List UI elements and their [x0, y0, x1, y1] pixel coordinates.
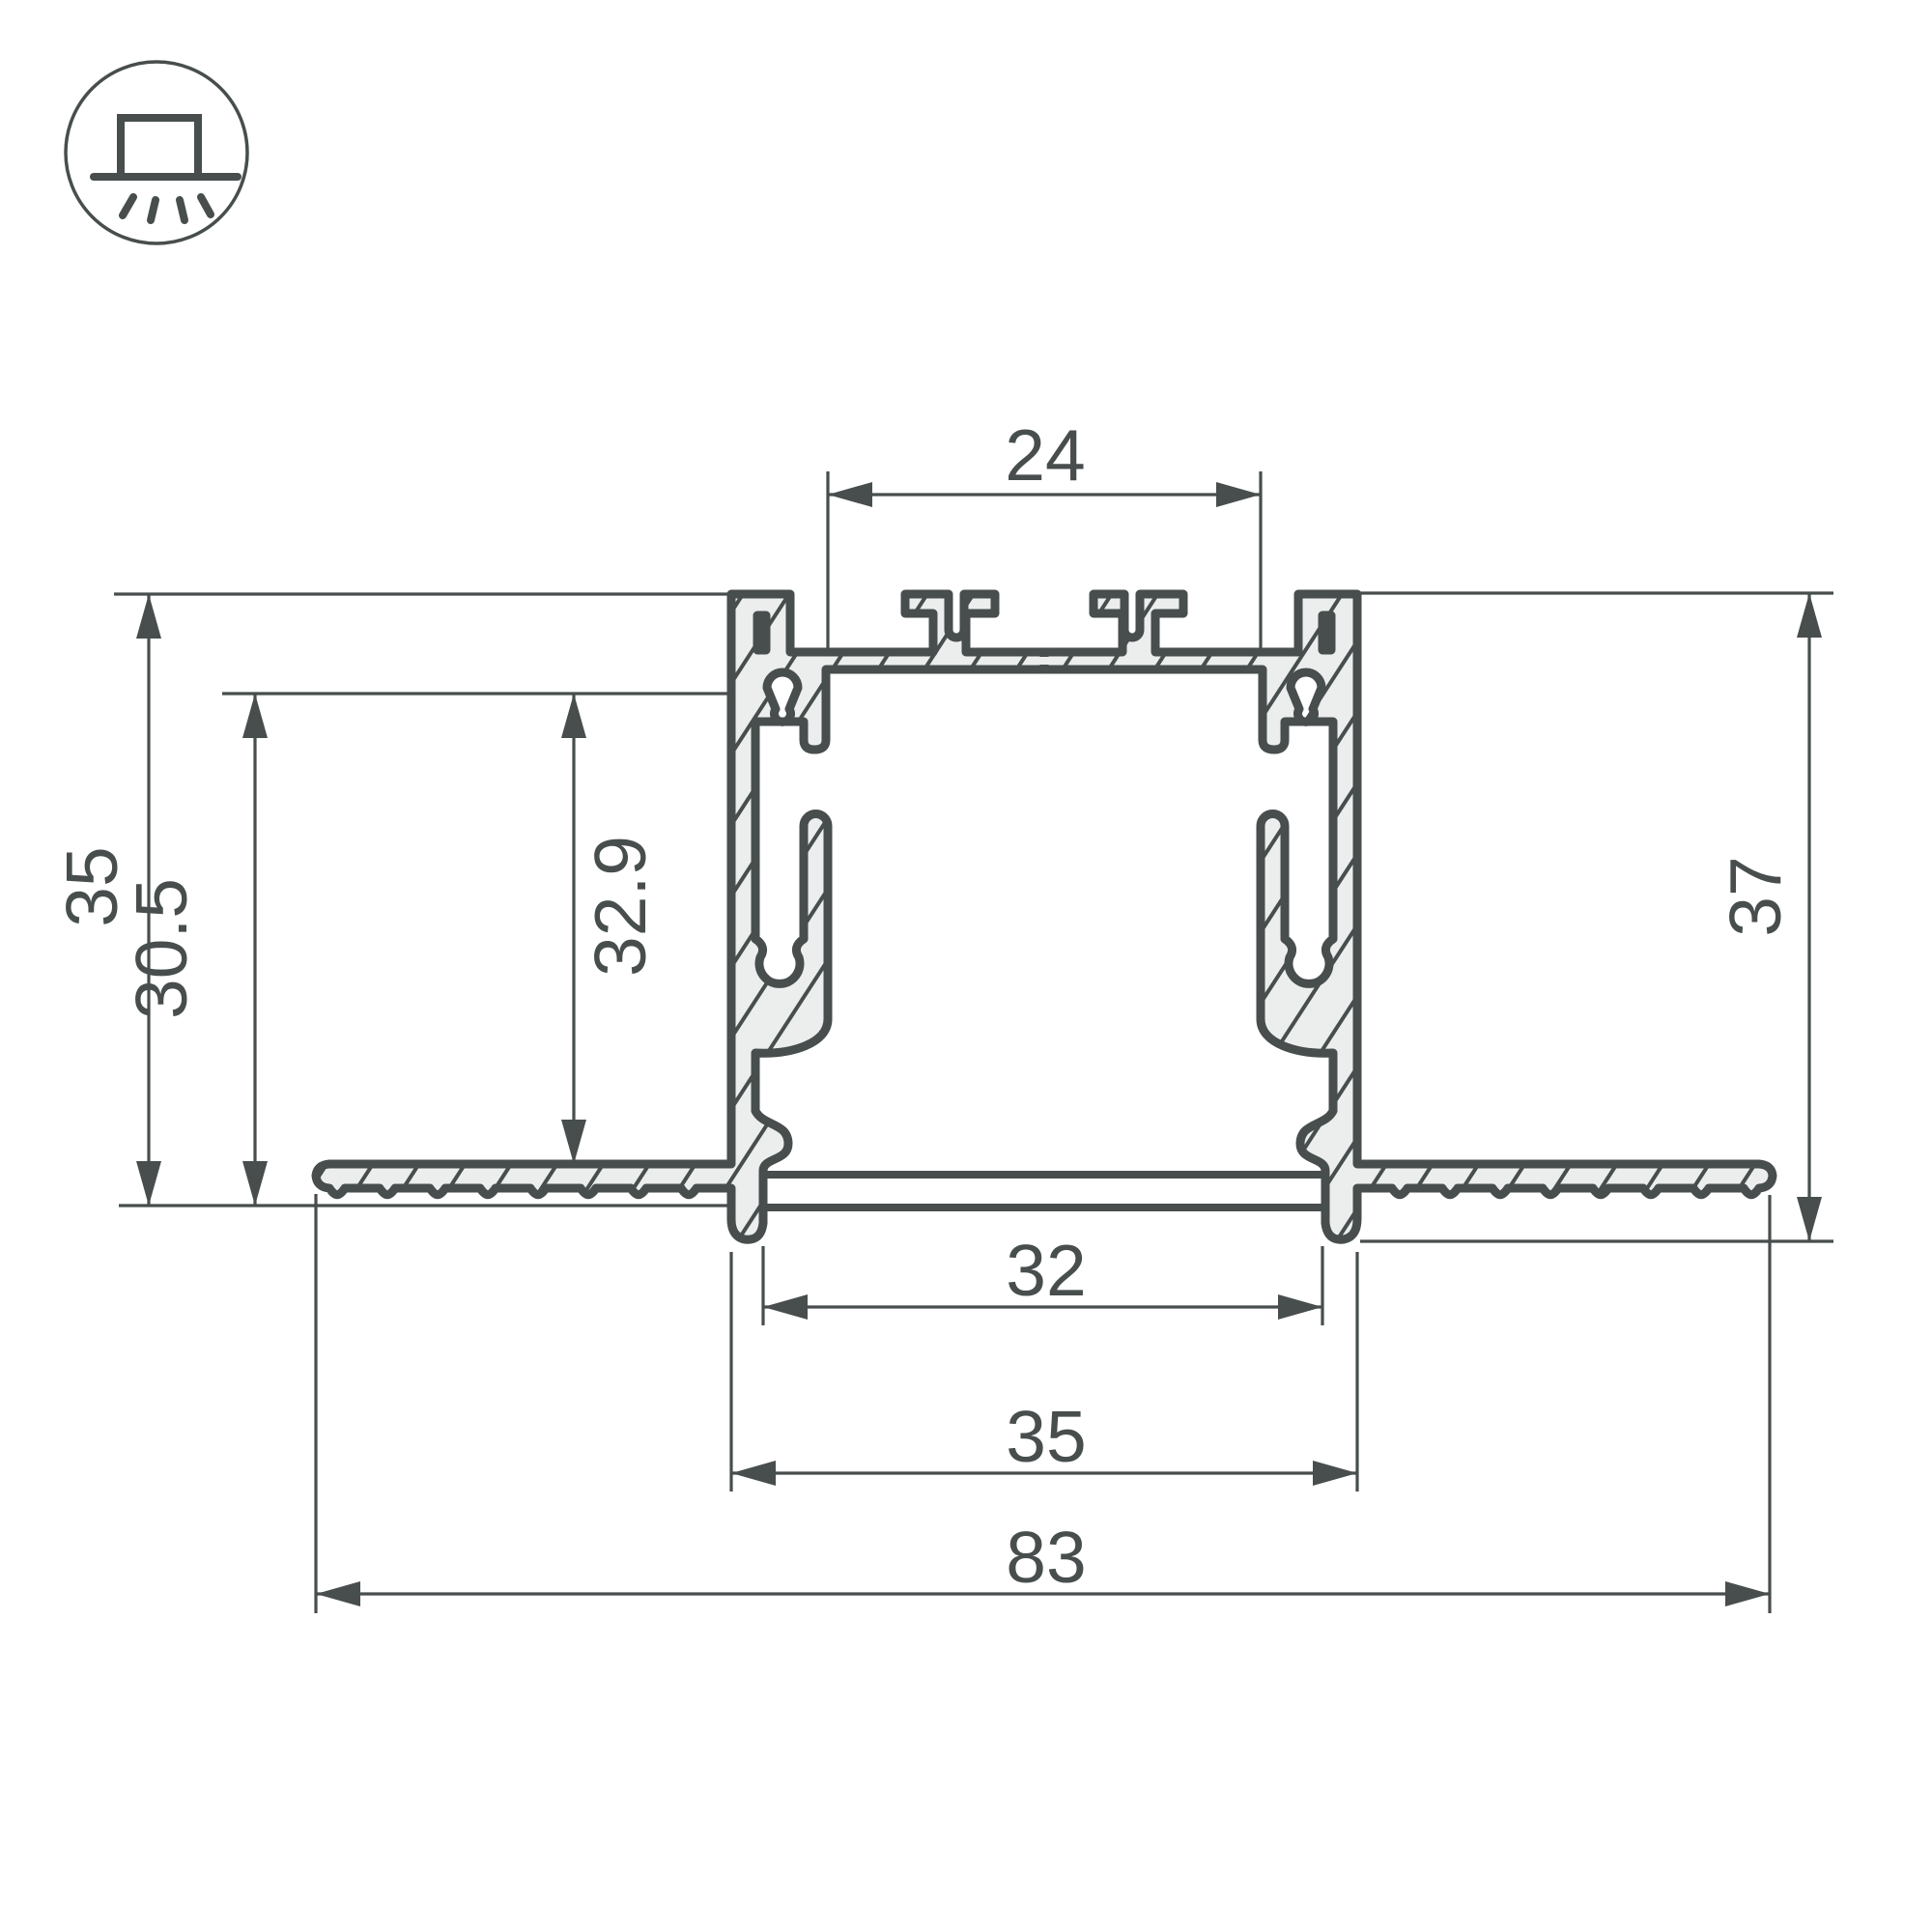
profile-section — [241, 570, 1845, 1265]
dim-label-35-bottom: 35 — [1006, 1396, 1086, 1477]
dim-label-37: 37 — [1715, 856, 1796, 936]
icon-light-rays — [123, 197, 211, 220]
icon-circle — [66, 62, 247, 243]
recessed-mount-icon — [66, 62, 247, 243]
dim-label-32: 32 — [1006, 1230, 1086, 1311]
dim-label-24: 24 — [1005, 414, 1085, 496]
drawing-page: 24 35 30.5 32.9 37 32 35 83 — [0, 0, 1932, 1932]
dimensions — [114, 471, 1833, 1613]
dim-label-32-9: 32.9 — [580, 836, 661, 977]
icon-fixture-box — [121, 118, 198, 177]
dim-label-83: 83 — [1006, 1517, 1086, 1598]
dim-top-24 — [828, 471, 1261, 651]
dim-label-30-5: 30.5 — [121, 878, 202, 1019]
technical-drawing: 24 35 30.5 32.9 37 32 35 83 — [0, 0, 1932, 1932]
